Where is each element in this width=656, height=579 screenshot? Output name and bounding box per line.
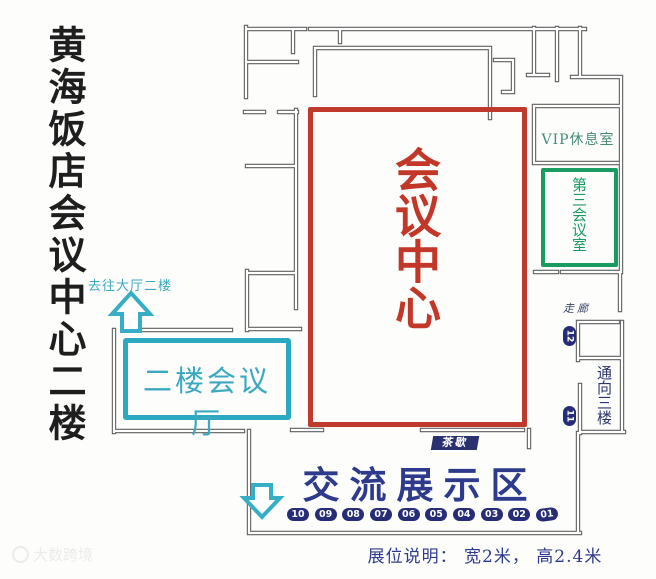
- watermark-logo-icon: [12, 546, 29, 563]
- booth-07: 07: [370, 508, 392, 521]
- booth-row: 10 09 08 07 06 05 04 03 02 01: [287, 508, 558, 521]
- wall-booth-marker-11: 11: [563, 406, 576, 426]
- watermark-text: 大数跨境: [33, 544, 93, 565]
- tea-break-badge: 茶歇: [431, 436, 479, 450]
- booth-06: 06: [398, 508, 420, 521]
- exchange-area-label: 交流展示区: [255, 455, 585, 509]
- booth-note: 展位说明： 宽2米， 高2.4米: [320, 542, 650, 567]
- wall-booth-marker-12: 12: [563, 326, 576, 346]
- booth-10: 10: [287, 508, 309, 521]
- booth-05: 05: [425, 508, 447, 521]
- booth-03: 03: [481, 508, 503, 521]
- floor-plan: 黄海饭店会议中心二楼 会议中心 二楼会议厅 第三会议室 VIP休息室 走廊 通向…: [0, 0, 656, 579]
- up-arrow-icon: [112, 293, 150, 331]
- wall-booth-marker-12-label: 12: [565, 330, 575, 343]
- booth-01: 01: [535, 507, 558, 523]
- booth-04: 04: [453, 508, 475, 521]
- booth-08: 08: [342, 508, 364, 521]
- booth-02: 02: [508, 508, 530, 521]
- booth-09: 09: [315, 508, 337, 521]
- watermark: 大数跨境: [12, 544, 93, 565]
- wall-booth-marker-11-label: 11: [565, 410, 575, 423]
